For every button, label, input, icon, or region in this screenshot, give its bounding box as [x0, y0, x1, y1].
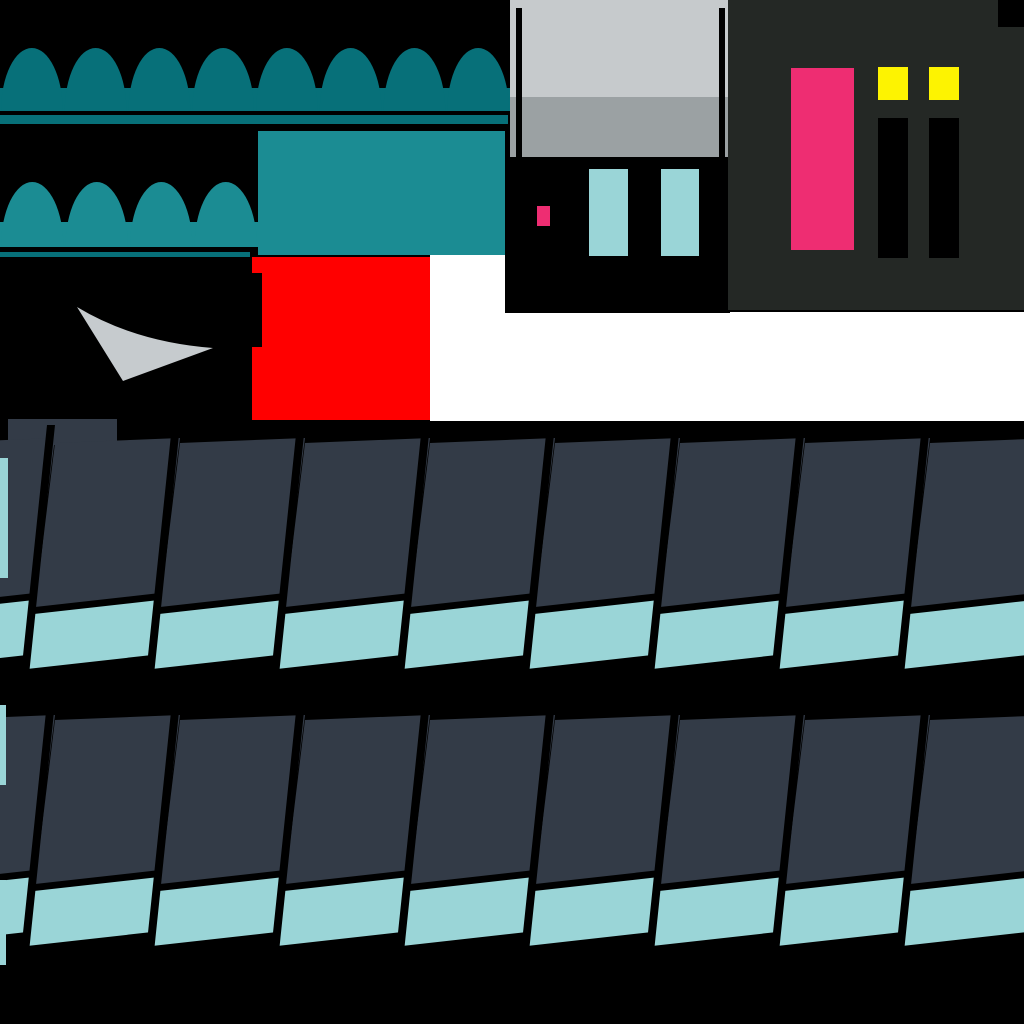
texture-atlas-stage — [0, 0, 1024, 1024]
window-lower — [510, 97, 728, 157]
charcoal-block — [728, 0, 1024, 310]
window-upper — [510, 0, 728, 97]
cyan-pane — [661, 169, 699, 256]
window-frame-bar — [719, 8, 725, 157]
roof-row-1 — [0, 419, 1024, 675]
red-panel-notch — [252, 273, 262, 347]
storefront-window — [510, 0, 728, 157]
teal-panel-rect — [258, 131, 505, 255]
window-frame-bar — [516, 8, 522, 157]
awning-large-underline — [0, 115, 508, 124]
yellow-light — [878, 67, 908, 100]
atlas-canvas — [0, 0, 1024, 1024]
edge-sliver — [0, 880, 6, 965]
edge-sliver — [0, 705, 6, 785]
charcoal-corner-notch — [998, 0, 1024, 27]
awning-small-underline — [0, 252, 250, 257]
door-slot — [929, 118, 959, 258]
charcoal-panel — [728, 0, 1024, 310]
red-panel-rect — [252, 257, 430, 420]
edge-sliver — [0, 458, 8, 578]
roof-row-2 — [0, 702, 1024, 965]
cyan-pane — [589, 169, 628, 256]
teal-panel — [258, 131, 505, 255]
pink-chip — [537, 206, 550, 226]
pink-door — [791, 68, 854, 250]
door-slot — [878, 118, 908, 258]
under-window — [505, 157, 730, 313]
red-panel — [252, 257, 430, 420]
yellow-light — [929, 67, 959, 100]
